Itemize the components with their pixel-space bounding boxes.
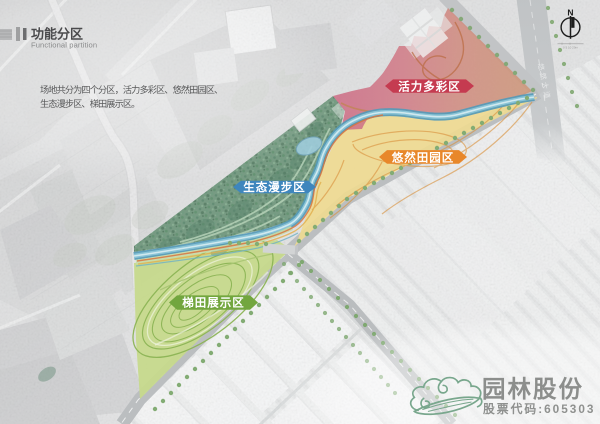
svg-text:园林股份: 园林股份: [482, 376, 584, 402]
svg-text:活力多彩区: 活力多彩区: [398, 79, 461, 93]
svg-text:梯田展示区: 梯田展示区: [182, 296, 245, 310]
svg-text:Functional partition: Functional partition: [31, 41, 97, 50]
svg-text:场地共分为四个分区，活力多彩区、悠然田园区、: 场地共分为四个分区，活力多彩区、悠然田园区、: [40, 84, 222, 95]
svg-text:悠然田园区: 悠然田园区: [391, 150, 455, 164]
svg-text:0 5 10 20m: 0 5 10 20m: [563, 45, 579, 49]
svg-text:功能分区: 功能分区: [31, 27, 83, 42]
svg-text:生态漫步区: 生态漫步区: [243, 180, 306, 194]
svg-text:生态漫步区、梯田展示区。: 生态漫步区、梯田展示区。: [40, 98, 139, 109]
svg-text:股票代码:605303: 股票代码:605303: [483, 402, 595, 416]
